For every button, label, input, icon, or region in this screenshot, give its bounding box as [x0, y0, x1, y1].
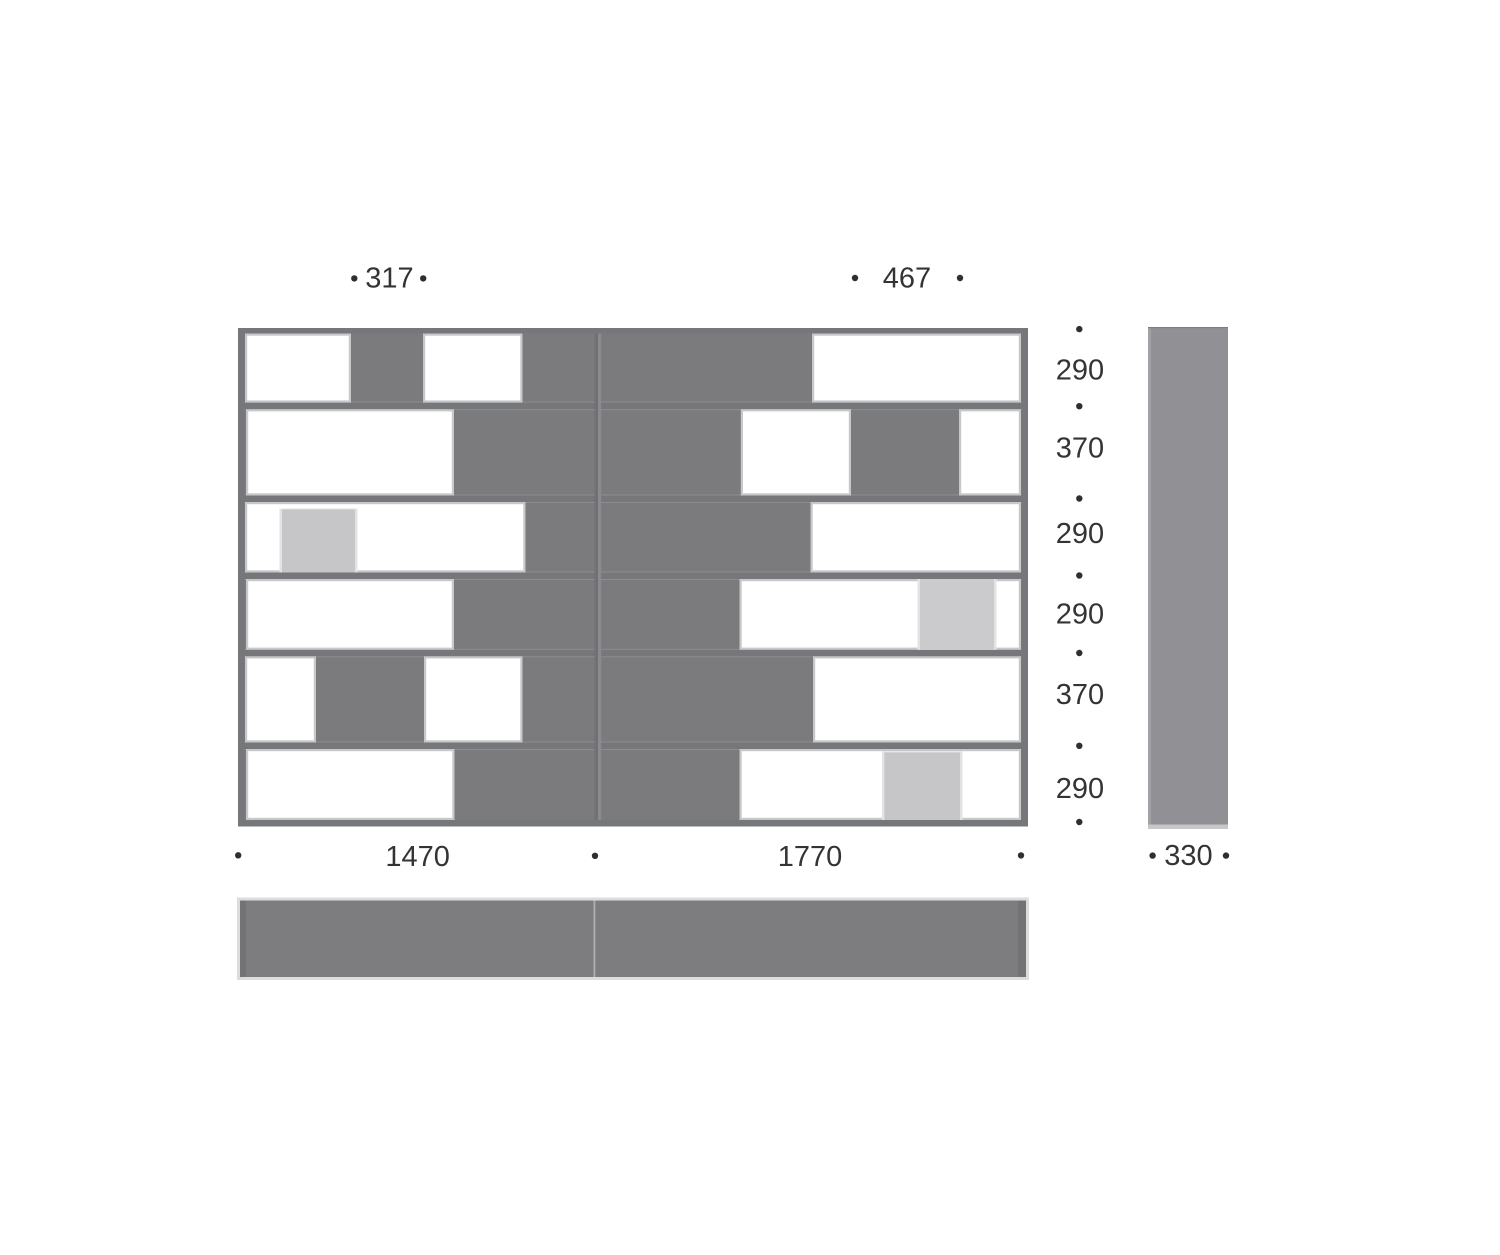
svg-text:370: 370	[1056, 433, 1104, 465]
svg-text:317: 317	[365, 262, 413, 294]
svg-text:370: 370	[1056, 679, 1104, 711]
svg-text:1470: 1470	[385, 841, 450, 873]
svg-text:330: 330	[1164, 840, 1212, 872]
svg-text:467: 467	[883, 262, 931, 294]
svg-text:290: 290	[1056, 599, 1104, 631]
svg-text:290: 290	[1056, 518, 1104, 550]
svg-text:290: 290	[1056, 773, 1104, 805]
svg-text:1770: 1770	[778, 841, 843, 873]
svg-text:290: 290	[1056, 354, 1104, 386]
